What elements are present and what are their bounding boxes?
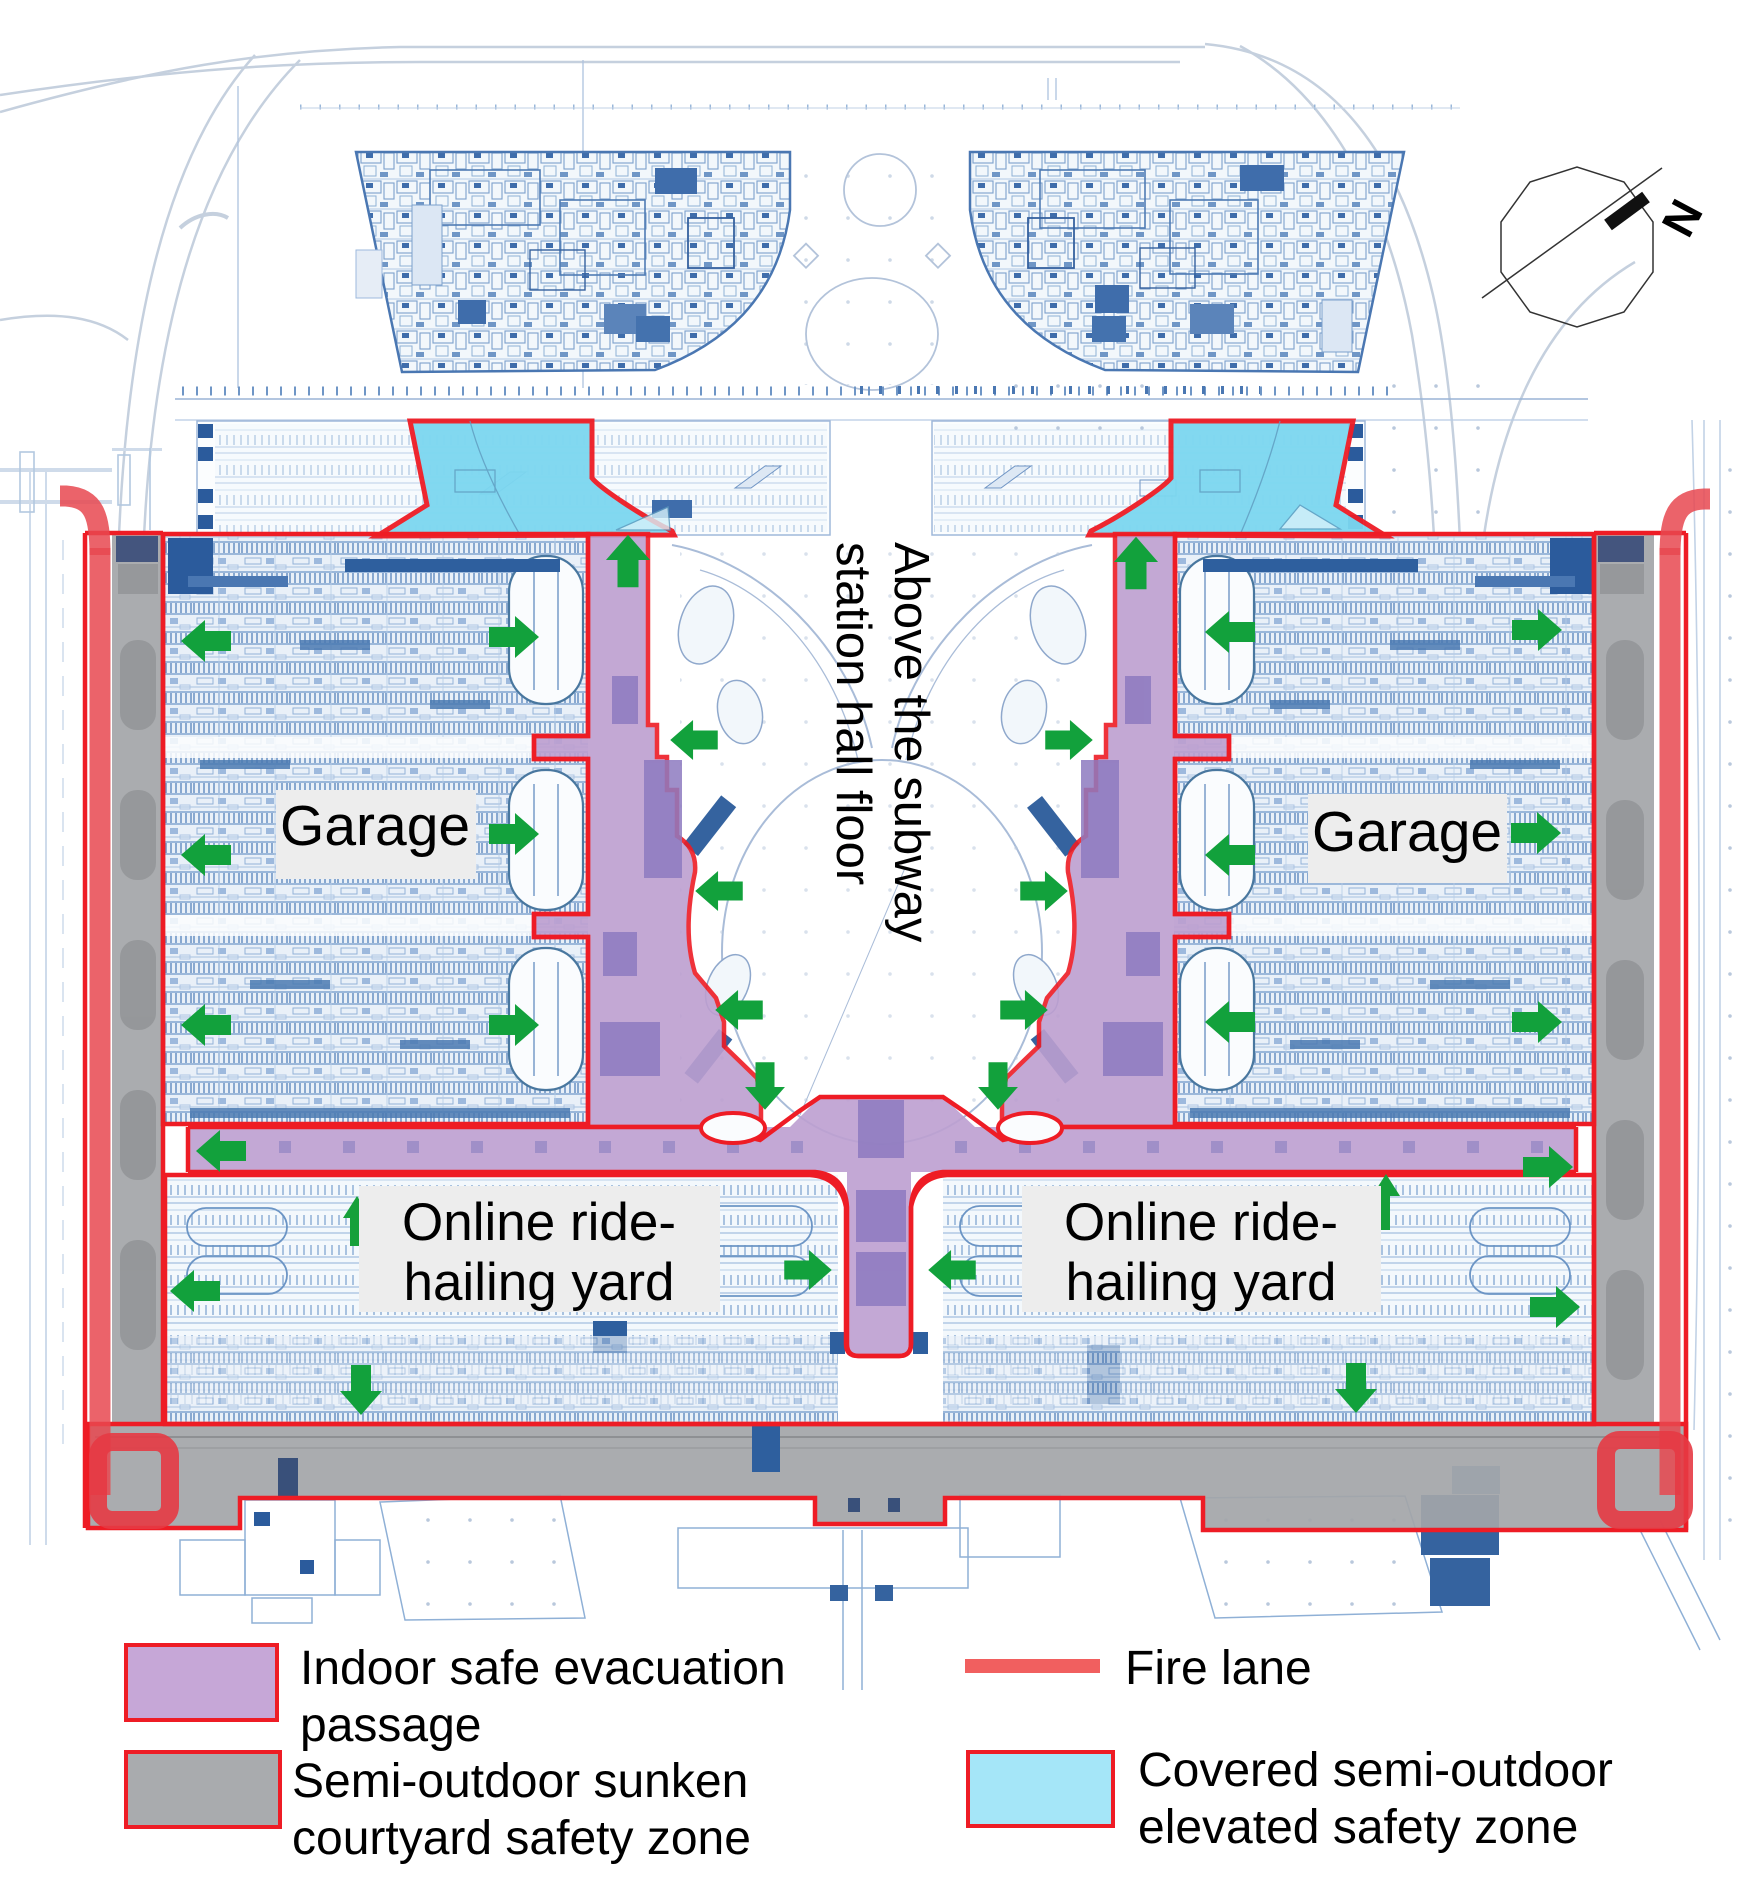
svg-text:station hall floor: station hall floor: [826, 542, 880, 885]
svg-text:passage: passage: [300, 1699, 481, 1752]
svg-text:Covered semi-outdoor: Covered semi-outdoor: [1138, 1744, 1613, 1797]
svg-text:Indoor safe evacuation: Indoor safe evacuation: [300, 1642, 786, 1695]
svg-text:courtyard safety zone: courtyard safety zone: [292, 1812, 751, 1865]
svg-text:Online ride-: Online ride-: [402, 1193, 676, 1252]
svg-text:hailing yard: hailing yard: [403, 1253, 674, 1312]
svg-text:Fire lane: Fire lane: [1125, 1642, 1312, 1695]
svg-text:Above the subway: Above the subway: [884, 542, 938, 943]
svg-text:hailing yard: hailing yard: [1065, 1253, 1336, 1312]
svg-text:elevated safety zone: elevated safety zone: [1138, 1801, 1578, 1854]
svg-text:Semi-outdoor sunken: Semi-outdoor sunken: [292, 1755, 748, 1808]
svg-text:Online ride-: Online ride-: [1064, 1193, 1338, 1252]
svg-text:Garage: Garage: [1312, 800, 1502, 864]
svg-text:Garage: Garage: [280, 794, 470, 858]
